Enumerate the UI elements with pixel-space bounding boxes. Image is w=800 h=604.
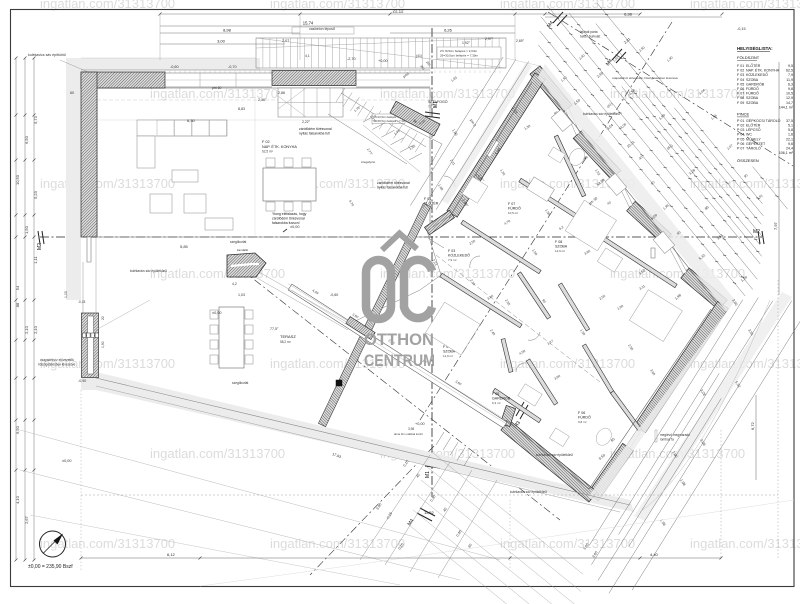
- svg-text:1,90: 1,90: [101, 341, 105, 348]
- svg-text:SZOBA: SZOBA: [746, 101, 759, 105]
- svg-text:SZÉLFOGÓ: SZÉLFOGÓ: [428, 99, 448, 104]
- svg-text:9,5: 9,5: [788, 64, 793, 68]
- svg-text:9,6: 9,6: [788, 142, 793, 146]
- svg-text:FÜRDŐ: FÜRDŐ: [578, 415, 591, 420]
- svg-text:24,4: 24,4: [786, 147, 793, 151]
- svg-text:F 01: F 01: [737, 64, 744, 68]
- svg-text:csapadékvíz elővezetők: csapadékvíz elővezetők: [40, 358, 74, 362]
- svg-text:szegélyzet: szegélyzet: [361, 160, 375, 164]
- svg-text:5,23: 5,23: [33, 190, 38, 199]
- svg-text:6,3: 6,3: [788, 82, 793, 86]
- svg-text:SZOBA: SZOBA: [746, 96, 759, 100]
- svg-text:NAP. ÉTK. KONYHA: NAP. ÉTK. KONYHA: [262, 144, 297, 149]
- svg-text:F 07: F 07: [737, 92, 744, 96]
- svg-text:5,85: 5,85: [180, 244, 189, 249]
- svg-text:kulékavics sáv épületkörül: kulékavics sáv épületkörül: [130, 269, 167, 273]
- svg-text:9,8: 9,8: [788, 87, 793, 91]
- svg-text:12,9 m²: 12,9 m²: [555, 249, 565, 253]
- svg-text:5,73: 5,73: [33, 115, 38, 124]
- svg-text:FÜRDŐ: FÜRDŐ: [746, 91, 759, 96]
- svg-text:ingatlan.com/31313700: ingatlan.com/31313700: [500, 356, 635, 371]
- svg-text:LÉPCSŐ: LÉPCSŐ: [746, 127, 761, 132]
- svg-text:54: 54: [15, 285, 20, 290]
- svg-text:2,86: 2,86: [278, 91, 285, 95]
- svg-text:szegőkorlát: szegőkorlát: [232, 381, 248, 385]
- svg-text:ingatlan.com/31313700: ingatlan.com/31313700: [150, 266, 285, 281]
- svg-text:10,5 m²: 10,5 m²: [508, 211, 518, 215]
- svg-text:3,98: 3,98: [408, 427, 414, 431]
- svg-text:1,92°: 1,92°: [462, 41, 471, 45]
- svg-text:1,50: 1,50: [24, 225, 29, 234]
- svg-text:F 08: F 08: [737, 96, 744, 100]
- svg-text:WC: WC: [746, 133, 752, 137]
- svg-text:F 09: F 09: [737, 101, 744, 105]
- svg-text:GÉPÉSZET: GÉPÉSZET: [746, 141, 766, 146]
- svg-text:2,36°: 2,36°: [258, 98, 267, 102]
- svg-text:F 05: F 05: [492, 392, 499, 396]
- svg-text:62,5 m²: 62,5 m²: [262, 150, 273, 154]
- svg-text:6,26: 6,26: [444, 28, 453, 33]
- svg-text:ÖSSZESEN: ÖSSZESEN: [737, 158, 759, 163]
- svg-text:-2,70: -2,70: [347, 57, 356, 61]
- svg-text:7,9: 7,9: [788, 73, 793, 77]
- svg-text:2,10: 2,10: [24, 325, 29, 334]
- svg-text:88: 88: [15, 302, 20, 307]
- svg-text:meglévő megmaradó: meglévő megmaradó: [660, 433, 690, 437]
- svg-text:ingatlan.com/31313700: ingatlan.com/31313700: [40, 176, 175, 191]
- svg-text:4,10: 4,10: [15, 495, 20, 504]
- svg-text:MŰHELY: MŰHELY: [746, 136, 761, 141]
- svg-text:HELYISÉGLISTA:: HELYISÉGLISTA:: [737, 46, 773, 51]
- svg-text:F 02: F 02: [737, 69, 744, 73]
- svg-text:77,5°: 77,5°: [270, 327, 279, 331]
- svg-text:ingatlan.com/31313700: ingatlan.com/31313700: [500, 536, 635, 551]
- svg-text:P 07: P 07: [737, 147, 744, 151]
- svg-text:zárófödém törésvonal: zárófödém törésvonal: [377, 181, 410, 185]
- svg-text:F 06: F 06: [578, 411, 585, 415]
- svg-text:144,1 m²: 144,1 m²: [779, 105, 794, 109]
- svg-text:-0,15: -0,15: [78, 300, 85, 304]
- svg-text:Ytong eléfalazás, hogy: Ytong eléfalazás, hogy: [272, 212, 307, 216]
- svg-text:7,9 m²: 7,9 m²: [448, 258, 457, 262]
- svg-text:nyílás falsarokba fut!: nyílás falsarokba fut!: [377, 186, 408, 190]
- svg-text:11,52: 11,52: [424, 510, 434, 515]
- svg-text:F 03: F 03: [448, 249, 455, 253]
- svg-text:(41): (41): [416, 54, 422, 58]
- svg-text:6,30: 6,30: [187, 118, 196, 123]
- svg-text:F 08: F 08: [555, 240, 562, 244]
- svg-text:8,98: 8,98: [223, 28, 232, 33]
- svg-text:nyílás falsarokba fut!: nyílás falsarokba fut!: [299, 132, 330, 136]
- svg-text:3,00: 3,00: [217, 39, 226, 44]
- svg-text:9,8 m²: 9,8 m²: [578, 420, 587, 424]
- svg-text:7,97: 7,97: [773, 221, 778, 230]
- svg-text:4,40: 4,40: [650, 552, 659, 557]
- svg-text:4,1: 4,1: [305, 54, 310, 58]
- svg-text:6,50: 6,50: [15, 425, 20, 434]
- svg-text:GARDRÓB: GARDRÓB: [746, 81, 765, 86]
- svg-text:8,83: 8,83: [238, 107, 245, 111]
- svg-text:-0,70: -0,70: [228, 65, 237, 69]
- svg-text:2,10: 2,10: [33, 325, 38, 334]
- svg-text:±0,00: ±0,00: [212, 311, 221, 315]
- svg-text:22,12: 22,12: [393, 9, 405, 14]
- svg-text:20: 20: [101, 316, 105, 320]
- svg-text:-0,15: -0,15: [737, 27, 746, 31]
- svg-text:lombos fa: lombos fa: [660, 438, 674, 442]
- svg-text:2,22°: 2,22°: [302, 120, 311, 124]
- svg-text:-0,60: -0,60: [330, 293, 338, 297]
- svg-text:vasbeton lépcső: vasbeton lépcső: [309, 27, 335, 31]
- svg-text:csapadékvíz elővezetők, hőszig: csapadékvíz elővezetők, hőszigetelésben …: [612, 76, 678, 80]
- svg-text:M1: M1: [425, 471, 431, 478]
- svg-text:7,5 m²: 7,5 m²: [428, 105, 437, 109]
- svg-text:1,03: 1,03: [64, 291, 68, 298]
- svg-text:2½ f0,5cm belépés = 2,04m: 2½ f0,5cm belépés = 2,04m: [440, 49, 478, 53]
- svg-text:62,5: 62,5: [786, 69, 793, 73]
- svg-text:KÖZLEKEDŐ: KÖZLEKEDŐ: [448, 253, 470, 258]
- svg-text:ELŐTÉR: ELŐTÉR: [746, 123, 761, 128]
- svg-text:NAP. ÉTK. KONYHA: NAP. ÉTK. KONYHA: [746, 68, 780, 73]
- svg-text:5,8: 5,8: [788, 128, 793, 132]
- svg-text:zárófödém törésvonal: zárófödém törésvonal: [272, 217, 305, 221]
- svg-text:5,1: 5,1: [788, 124, 793, 128]
- svg-text:1,11: 1,11: [33, 255, 38, 263]
- svg-text:22,1: 22,1: [786, 137, 793, 141]
- svg-text:2,67: 2,67: [24, 515, 29, 524]
- svg-text:±0,00: ±0,00: [62, 459, 71, 463]
- svg-text:TERASZ: TERASZ: [280, 334, 296, 339]
- svg-text:SZOBA: SZOBA: [746, 78, 759, 82]
- svg-text:12,9: 12,9: [786, 96, 793, 100]
- svg-text:+0,00: +0,00: [378, 59, 388, 63]
- svg-text:ingatlan.com/31313700: ingatlan.com/31313700: [150, 446, 285, 461]
- svg-text:10,50: 10,50: [15, 174, 20, 185]
- svg-text:±0,00 = 235,90 Bszf: ±0,00 = 235,90 Bszf: [28, 564, 73, 570]
- svg-text:58,2 m²: 58,2 m²: [280, 340, 291, 344]
- svg-text:kulékavics sáv építkörül: kulékavics sáv építkörül: [28, 53, 66, 57]
- svg-text:ingatlan.com/31313700: ingatlan.com/31313700: [270, 536, 405, 551]
- svg-text:±0,00: ±0,00: [290, 225, 299, 229]
- svg-text:10,5: 10,5: [786, 92, 793, 96]
- svg-text:falsarokba fusson!: falsarokba fusson!: [272, 221, 300, 225]
- svg-text:14,7: 14,7: [786, 101, 793, 105]
- svg-text:FÖLDSZINT: FÖLDSZINT: [737, 55, 760, 60]
- svg-text:CENTRUM: CENTRUM: [364, 352, 435, 370]
- svg-text:M2: M2: [37, 243, 43, 250]
- svg-text:zárófödém törésvonal: zárófödém törésvonal: [299, 127, 332, 131]
- svg-text:P 05: P 05: [737, 137, 744, 141]
- svg-text:2,07: 2,07: [282, 39, 289, 43]
- svg-text:6,38: 6,38: [624, 12, 633, 17]
- svg-text:akna fém etákkal lezárt: akna fém etákkal lezárt: [394, 432, 423, 436]
- svg-text:PINCE: PINCE: [737, 111, 750, 116]
- svg-text:29=30,5cm belépés = 7,30m: 29=30,5cm belépés = 7,30m: [440, 54, 479, 58]
- svg-text:lejárati párta: lejárati párta: [580, 30, 598, 34]
- svg-text:ingatlan.com/31313700: ingatlan.com/31313700: [690, 536, 800, 551]
- svg-text:1,03: 1,03: [238, 293, 245, 297]
- svg-text:2,97°: 2,97°: [485, 37, 494, 41]
- svg-text:TÁROLÓ: TÁROLÓ: [746, 146, 761, 151]
- svg-text:pm 60: pm 60: [212, 86, 222, 90]
- svg-text:F 04: F 04: [737, 78, 744, 82]
- svg-text:F 05: F 05: [737, 82, 744, 86]
- svg-text:kulékavics sáv épületkörül: kulékavics sáv épületkörül: [583, 112, 620, 116]
- svg-text:P 06: P 06: [737, 142, 744, 146]
- svg-text:6,50: 6,50: [24, 135, 29, 144]
- svg-text:2,69°: 2,69°: [516, 39, 525, 43]
- svg-text:SZOBA: SZOBA: [555, 245, 568, 249]
- svg-text:FÜRDŐ: FÜRDŐ: [508, 206, 521, 211]
- svg-text:ingatlan.com/31313700: ingatlan.com/31313700: [610, 266, 745, 281]
- svg-text:-0,90: -0,90: [78, 379, 86, 383]
- svg-text:ELŐTÉR: ELŐTÉR: [746, 63, 761, 68]
- svg-text:GÉPKOCSI TÁROLÓ: GÉPKOCSI TÁROLÓ: [746, 118, 781, 123]
- svg-text:FÜRDŐ: FÜRDŐ: [746, 86, 759, 91]
- svg-text:F 07: F 07: [508, 202, 515, 206]
- svg-text:beton burkolat: beton burkolat: [580, 35, 600, 39]
- svg-text:P 03: P 03: [737, 128, 744, 132]
- svg-text:+0,00: +0,00: [415, 422, 425, 426]
- svg-text:106,1 m²: 106,1 m²: [779, 151, 794, 155]
- svg-text:kandalló: kandalló: [237, 248, 249, 252]
- svg-text:6,3 m²: 6,3 m²: [492, 401, 501, 405]
- svg-text:szegőkorlát: szegőkorlát: [230, 240, 246, 244]
- svg-text:kulékavics sáv épületkörül: kulékavics sáv épületkörül: [536, 453, 573, 457]
- svg-text:37,5: 37,5: [786, 119, 793, 123]
- svg-text:P 01: P 01: [737, 119, 744, 123]
- svg-text:6,12: 6,12: [167, 552, 176, 557]
- svg-text:GARDRÓB: GARDRÓB: [492, 396, 511, 401]
- svg-text:KÖZLEKEDŐ: KÖZLEKEDŐ: [746, 72, 768, 77]
- svg-text:60: 60: [70, 91, 74, 95]
- svg-text:F 03: F 03: [737, 73, 744, 77]
- svg-text:F 02: F 02: [262, 140, 270, 144]
- svg-text:11,9 m²: 11,9 m²: [443, 354, 453, 358]
- svg-text:-0,60: -0,60: [170, 65, 179, 69]
- svg-text:4,2: 4,2: [232, 282, 237, 286]
- svg-text:OTTHON: OTTHON: [364, 331, 434, 349]
- svg-text:P 04: P 04: [737, 133, 744, 137]
- svg-text:11,9: 11,9: [786, 78, 793, 82]
- svg-text:6,72: 6,72: [750, 421, 755, 430]
- svg-text:F 06: F 06: [737, 87, 744, 91]
- svg-text:29=30,5cm belépés = 7,3m: 29=30,5cm belépés = 7,3m: [374, 119, 405, 123]
- svg-text:hőszigetelésben kivezetve: hőszigetelésben kivezetve: [38, 363, 75, 367]
- svg-text:1,6: 1,6: [788, 133, 793, 137]
- svg-text:P 02: P 02: [737, 124, 744, 128]
- svg-text:kulékavics sáv épületkörül: kulékavics sáv épületkörül: [510, 490, 547, 494]
- svg-text:15,74: 15,74: [303, 21, 314, 26]
